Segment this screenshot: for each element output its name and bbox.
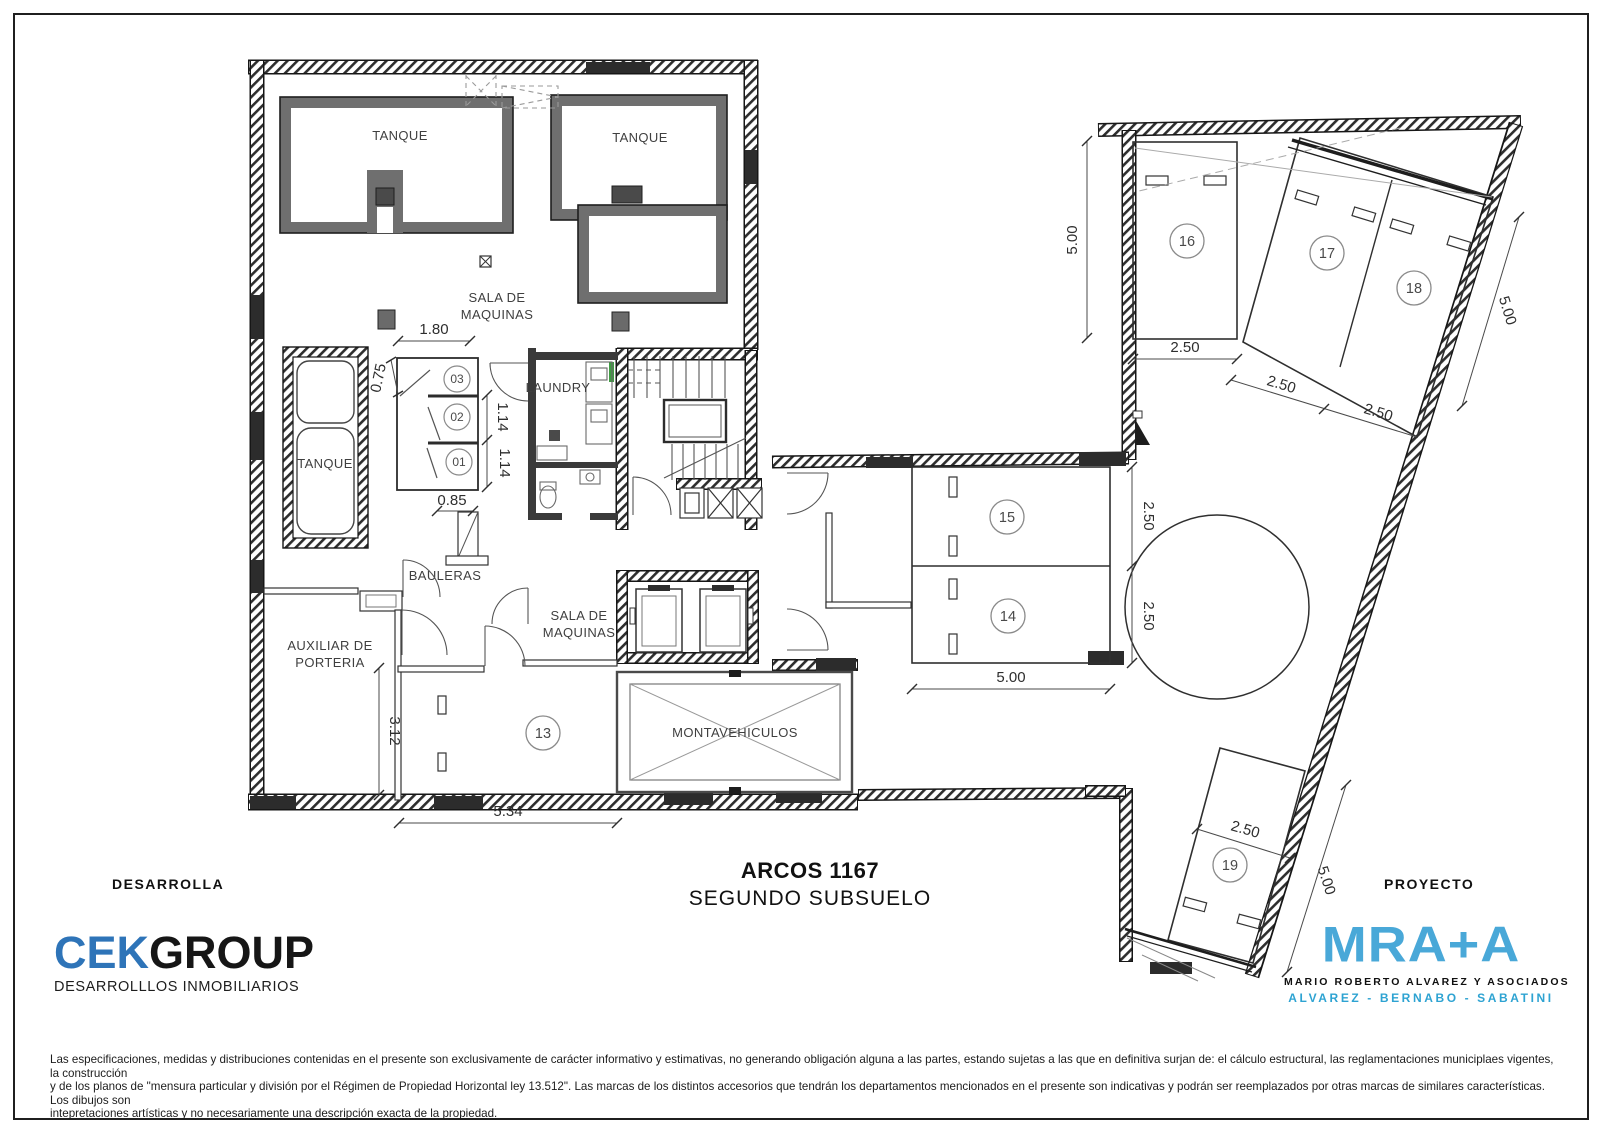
dim-0-85: 0.85 [437, 492, 466, 509]
unit-14: 14 [1000, 609, 1016, 625]
unit-15: 15 [999, 510, 1015, 526]
developer-logo-cek: CEK [54, 927, 149, 978]
developer-heading: DESARROLLA [112, 876, 224, 892]
unit-01: 01 [452, 455, 466, 469]
disclaimer-line-2: y de los planos de "mensura particular y… [50, 1080, 1555, 1107]
ramp-edge-top [1135, 128, 1493, 205]
parking-15-14: 15 14 [912, 467, 1110, 663]
porter-aux-label-2: PORTERIA [295, 655, 364, 670]
dim-1-80: 1.80 [419, 321, 448, 338]
dim-2-50-p14: 2.50 [1140, 601, 1157, 630]
unit-17: 17 [1319, 246, 1335, 262]
car-lift: MONTAVEHICULOS [617, 670, 852, 794]
parking-zone-door [1133, 411, 1150, 445]
parking-13: 13 [438, 696, 560, 771]
parking-19: 19 [1125, 748, 1305, 981]
dim-2-50-p19: 2.50 [1229, 817, 1262, 841]
disclaimer-line-3: intepretaciones artísticas y no necesari… [50, 1107, 1555, 1121]
unit-03: 03 [450, 372, 464, 386]
plan-subtitle: SEGUNDO SUBSUELO [660, 887, 960, 911]
dim-5-00-left: 5.00 [1064, 225, 1081, 254]
plan-title: ARCOS 1167 [660, 858, 960, 884]
unit-18: 18 [1406, 281, 1422, 297]
tank-left-label: TANQUE [297, 456, 353, 471]
disclaimer-line-1: Las especificaciones, medidas y distribu… [50, 1053, 1555, 1080]
dim-5-34: 5.34 [493, 803, 522, 820]
tank-room-top-right: TANQUE [551, 95, 727, 303]
architect-logo-subline2: ALVAREZ - BERNABO - SABATINI [1284, 991, 1558, 1005]
bauleras-label: BAULERAS [409, 568, 482, 583]
tank-room-left: TANQUE [283, 347, 368, 548]
machine-room-upper-label-2: MAQUINAS [461, 307, 534, 322]
machine-room-lower-label-1: SALA DE [551, 608, 608, 623]
dim-3-12: 3.12 [386, 716, 403, 745]
unit-13: 13 [535, 726, 551, 742]
laundry-label: LAUNDRY [526, 380, 591, 395]
dim-1-14-a: 1.14 [494, 402, 511, 431]
elevators [630, 585, 753, 652]
dim-2-50-p16: 2.50 [1170, 339, 1199, 356]
tank-room-top-left: TANQUE [280, 97, 513, 233]
dim-2-50-p17: 2.50 [1265, 372, 1298, 397]
title-block: ARCOS 1167 SEGUNDO SUBSUELO [660, 858, 960, 911]
architect-logo-subline1: MARIO ROBERTO ALVAREZ Y ASOCIADOS [1284, 976, 1558, 988]
developer-logo-group: GROUP [149, 927, 314, 978]
developer-logo: CEKGROUP DESARROLLLOS INMOBILIARIOS [54, 930, 314, 995]
dim-5-00-right: 5.00 [1495, 294, 1520, 327]
dim-5-00-p19: 5.00 [1314, 864, 1339, 897]
tank-top-right-label: TANQUE [612, 130, 668, 145]
vestibule [787, 473, 911, 650]
laundry-room: LAUNDRY [490, 348, 618, 520]
dim-2-50-p15: 2.50 [1140, 501, 1157, 530]
architect-logo: MRA+A MARIO ROBERTO ALVAREZ Y ASOCIADOS … [1284, 918, 1558, 1005]
dim-0-75: 0.75 [367, 362, 390, 394]
porter-aux-label-1: AUXILIAR DE [287, 638, 372, 653]
service-shafts [680, 488, 762, 518]
locker-block: 03 02 01 [397, 358, 488, 565]
dim-1-14-b: 1.14 [496, 448, 513, 477]
tank-top-left-label: TANQUE [372, 128, 428, 143]
project-heading: PROYECTO [1384, 876, 1474, 892]
unit-16: 16 [1179, 234, 1195, 250]
dim-5-00-p14: 5.00 [996, 669, 1025, 686]
developer-logo-tagline: DESARROLLLOS INMOBILIARIOS [54, 979, 314, 995]
machine-room-upper-label-1: SALA DE [469, 290, 526, 305]
dimensions: 1.80 0.75 1.14 1.14 0.85 3.12 5.34 5.00 … [367, 136, 1524, 977]
architect-logo-name: MRA+A [1284, 920, 1558, 970]
unit-19: 19 [1222, 858, 1238, 874]
car-lift-label: MONTAVEHICULOS [672, 725, 798, 740]
disclaimer-text: Las especificaciones, medidas y distribu… [50, 1053, 1555, 1121]
unit-02: 02 [450, 410, 464, 424]
machine-room-lower-label-2: MAQUINAS [543, 625, 616, 640]
